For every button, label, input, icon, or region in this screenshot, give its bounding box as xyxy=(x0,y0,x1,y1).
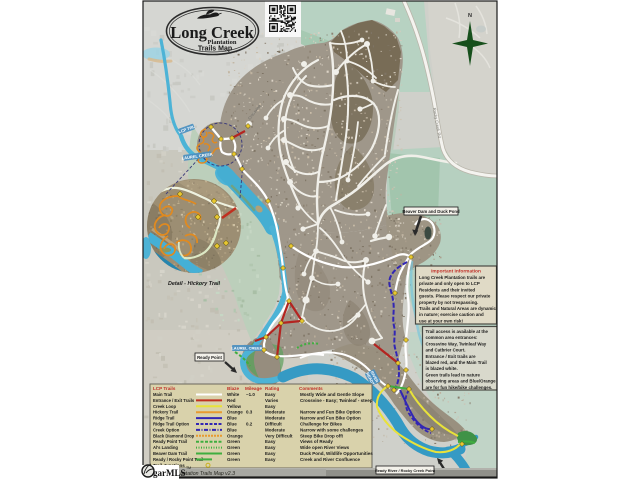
svg-text:property by not trespassing.: property by not trespassing. xyxy=(419,300,478,305)
svg-text:Easy: Easy xyxy=(265,439,276,444)
svg-text:Very Difficult: Very Difficult xyxy=(265,433,293,438)
svg-text:blazed red, and the Main Trail: blazed red, and the Main Trail xyxy=(426,360,487,365)
svg-text:Ridge Trail Option: Ridge Trail Option xyxy=(153,422,190,427)
svg-text:Crossvine Way, Twinleaf Way: Crossvine Way, Twinleaf Way xyxy=(426,341,487,346)
svg-text:Easy: Easy xyxy=(265,451,276,456)
svg-text:Ready Point: Ready Point xyxy=(197,355,222,360)
svg-text:0.2: 0.2 xyxy=(246,422,253,427)
svg-text:Blue: Blue xyxy=(227,416,237,421)
svg-text:LCP Trails: LCP Trails xyxy=(153,386,176,391)
svg-text:Beaver Dam and Duck Pond: Beaver Dam and Duck Pond xyxy=(402,209,460,214)
svg-text:TM: TM xyxy=(186,466,191,470)
svg-text:Easy: Easy xyxy=(265,392,276,397)
svg-text:Wide open River Views: Wide open River Views xyxy=(300,445,350,450)
svg-text:use at your own risk!: use at your own risk! xyxy=(419,318,463,323)
svg-text:Views of Ready: Views of Ready xyxy=(300,439,333,444)
svg-text:Easy: Easy xyxy=(265,445,276,450)
svg-text:guests. Please respect our pri: guests. Please respect our private xyxy=(419,294,491,299)
svg-text:Varies: Varies xyxy=(265,398,279,403)
svg-text:0.3: 0.3 xyxy=(246,410,253,415)
svg-text:Mostly Wide and Gentle Slope: Mostly Wide and Gentle Slope xyxy=(300,392,365,397)
svg-text:Trails Map: Trails Map xyxy=(198,46,232,53)
svg-text:Important Information: Important Information xyxy=(431,269,481,275)
svg-text:is blazed white.: is blazed white. xyxy=(426,366,458,371)
svg-text:Narrow and Fun Bike Option: Narrow and Fun Bike Option xyxy=(300,410,361,415)
svg-text:in nature; exercise caution an: in nature; exercise caution and xyxy=(419,312,484,317)
svg-text:Residents and their invited: Residents and their invited xyxy=(419,287,475,292)
svg-text:Comments: Comments xyxy=(299,386,323,391)
svg-text:Hickory Trail: Hickory Trail xyxy=(153,410,178,415)
svg-text:Ready Point Trail: Ready Point Trail xyxy=(153,439,187,444)
svg-text:Steep Bike Drop off!: Steep Bike Drop off! xyxy=(300,433,344,438)
svg-text:Green: Green xyxy=(227,439,240,444)
svg-text:Orange: Orange xyxy=(227,410,243,415)
svg-text:Moderate: Moderate xyxy=(265,410,286,415)
svg-text:Moderate: Moderate xyxy=(265,427,286,432)
svg-text:Ready / Rocky Point Trail: Ready / Rocky Point Trail xyxy=(153,457,203,462)
svg-text:Green: Green xyxy=(227,457,240,462)
svg-text:garMLS: garMLS xyxy=(153,468,186,478)
svg-text:Duck Pond, Wildlife Opportunit: Duck Pond, Wildlife Opportunities xyxy=(300,451,373,456)
svg-text:Entrance / Exit trails are: Entrance / Exit trails are xyxy=(426,354,477,359)
svg-text:Challenge for Bikes: Challenge for Bikes xyxy=(300,422,343,427)
svg-text:Orange: Orange xyxy=(227,433,243,438)
svg-text:antation Trails Map v2.3: antation Trails Map v2.3 xyxy=(180,471,235,477)
svg-text:Narrow with some challenges: Narrow with some challenges xyxy=(300,427,364,432)
svg-text:Mileage: Mileage xyxy=(245,386,262,391)
svg-text:are for fun hike/bike challeng: are for fun hike/bike challenges. xyxy=(426,385,493,390)
svg-text:Entrance / Exit Trails: Entrance / Exit Trails xyxy=(153,398,195,403)
svg-text:~1.0: ~1.0 xyxy=(246,392,255,397)
svg-text:Blaze: Blaze xyxy=(227,386,239,391)
svg-text:Green: Green xyxy=(227,451,240,456)
svg-text:White: White xyxy=(227,392,240,397)
svg-text:private and only open to LCP: private and only open to LCP xyxy=(419,281,480,286)
svg-text:Beaver Dam Trail: Beaver Dam Trail xyxy=(153,451,187,456)
svg-text:Trails and Natural Areas are d: Trails and Natural Areas are dynamic xyxy=(419,306,497,311)
svg-text:observing areas and Blue/Orang: observing areas and Blue/Orange xyxy=(426,379,497,384)
svg-text:Green trails lead to nature: Green trails lead to nature xyxy=(426,372,481,377)
svg-text:Red: Red xyxy=(227,398,236,403)
svg-text:Detail - Hickory Trail: Detail - Hickory Trail xyxy=(168,281,221,287)
svg-text:Creek Option: Creek Option xyxy=(153,427,180,432)
svg-text:Al's Landing: Al's Landing xyxy=(153,445,178,450)
svg-text:Yellow: Yellow xyxy=(227,404,242,409)
svg-text:Black Diamond Drop: Black Diamond Drop xyxy=(153,433,195,438)
svg-text:Ridge Trail: Ridge Trail xyxy=(153,416,174,421)
svg-text:Green: Green xyxy=(227,445,240,450)
svg-text:Creek Loop: Creek Loop xyxy=(153,404,176,409)
svg-text:Rating: Rating xyxy=(265,386,279,391)
svg-text:Easy: Easy xyxy=(265,404,276,409)
svg-text:Creek and River Confluence: Creek and River Confluence xyxy=(300,457,361,462)
svg-text:Moderate: Moderate xyxy=(265,416,286,421)
svg-text:Narrow and Fun Bike Option: Narrow and Fun Bike Option xyxy=(300,416,361,421)
svg-text:and Catbrier Court.: and Catbrier Court. xyxy=(426,348,466,353)
svg-text:Trail access is available at t: Trail access is available at the xyxy=(426,329,489,334)
svg-text:Blue: Blue xyxy=(227,427,237,432)
svg-text:Main Trail: Main Trail xyxy=(153,392,172,397)
svg-text:common area entrances:: common area entrances: xyxy=(426,335,479,340)
svg-text:Difficult: Difficult xyxy=(265,422,282,427)
svg-text:LAUREL CREEK: LAUREL CREEK xyxy=(231,346,262,351)
svg-text:Long Creek Plantation trails a: Long Creek Plantation trails are xyxy=(419,275,486,280)
svg-text:Crossvine - Easy; Twinleaf - s: Crossvine - Easy; Twinleaf - steep xyxy=(300,398,373,403)
svg-text:Easy: Easy xyxy=(265,457,276,462)
svg-text:N: N xyxy=(468,13,472,19)
svg-text:Ready River / Rocky Creek Poin: Ready River / Rocky Creek Point xyxy=(375,468,436,473)
svg-text:Blue: Blue xyxy=(227,422,237,427)
